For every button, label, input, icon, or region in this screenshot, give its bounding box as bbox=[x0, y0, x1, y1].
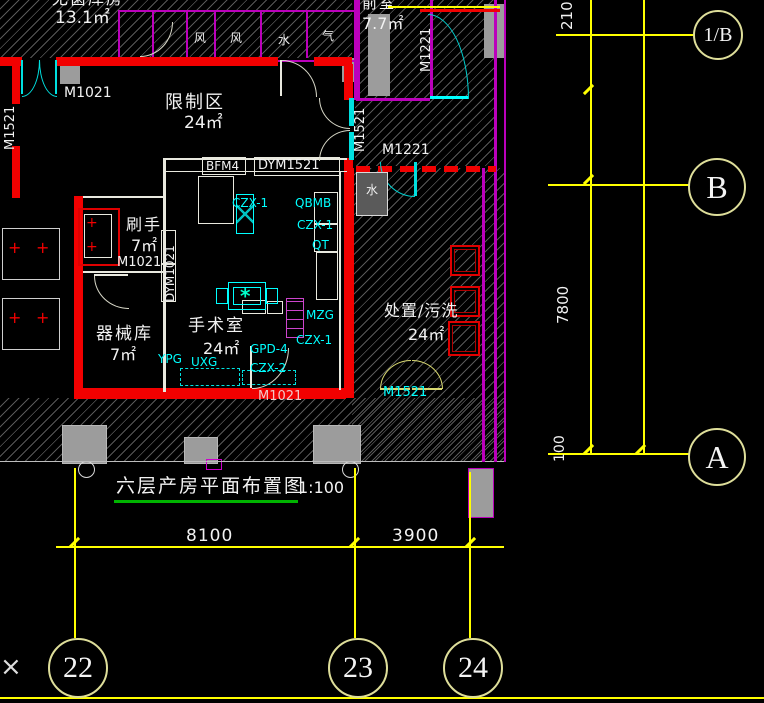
building-edge-line bbox=[0, 461, 504, 462]
door-label-dym1521: DYM1521 bbox=[258, 159, 320, 172]
room-anteroom-name: 前室 bbox=[362, 0, 396, 11]
grid-bubble-a: A bbox=[688, 428, 746, 486]
building-edge-v3 bbox=[504, 0, 506, 462]
equip-label-uxg: UXG bbox=[191, 356, 217, 368]
dim-line-bottom bbox=[56, 546, 504, 548]
door-label-m1021-scrub: M1021 bbox=[117, 256, 161, 269]
grid-line-b bbox=[548, 184, 690, 186]
shaft-label-2: 风 bbox=[230, 32, 242, 44]
equip-label-mzg: MZG bbox=[306, 309, 334, 321]
equip-label-qt: QT bbox=[312, 239, 329, 251]
column-bottom-1 bbox=[62, 425, 107, 464]
grid-ext-22 bbox=[74, 468, 76, 638]
column-bottom-3 bbox=[313, 425, 361, 464]
grid-bubble-b: B bbox=[688, 158, 746, 216]
drawing-title: 六层产房平面布置图 bbox=[116, 477, 305, 496]
room-sterile-store-area: 13.1㎡ bbox=[55, 10, 110, 27]
operating-table-lamp-symbol: * bbox=[240, 286, 250, 306]
drawing-scale: 1:100 bbox=[298, 480, 344, 496]
door-label-m1221-horizontal: M1221 bbox=[382, 143, 430, 157]
grid-bubble-24: 24 bbox=[443, 638, 503, 698]
water-shaft-label: 水 bbox=[366, 184, 378, 196]
or-right-inner-line bbox=[339, 172, 341, 390]
mzg-unit bbox=[286, 298, 304, 338]
dim-tick bbox=[583, 84, 594, 95]
room-scrub-name: 刷手 bbox=[126, 217, 162, 233]
wall-left-upper bbox=[12, 64, 20, 104]
operating-table-side-right bbox=[266, 288, 278, 304]
equip-label-czx1-c: CZX-1 bbox=[296, 334, 332, 346]
qt-unit bbox=[316, 252, 338, 300]
top-right-red-line bbox=[420, 9, 500, 12]
door-arc-topleft-1 bbox=[22, 60, 40, 97]
sink-tap-mark: + bbox=[86, 240, 98, 254]
shaft-divider-5 bbox=[306, 10, 308, 58]
wall-bottom bbox=[74, 388, 346, 399]
shaft-divider-2 bbox=[186, 10, 188, 58]
grid-cross-mark: × bbox=[0, 654, 22, 680]
trolley-1-mark: + bbox=[8, 240, 21, 256]
cad-floor-plan-canvas: * + + + + + + 水 风 风 水 气 无菌库房 13.1㎡ 限制区 2… bbox=[0, 0, 764, 703]
dim-text-100: 100 bbox=[553, 435, 567, 462]
room-disposal-area: 24㎡ bbox=[408, 327, 444, 343]
room-anteroom-area: 7.7㎡ bbox=[362, 16, 403, 32]
door-label-bfm4: BFM4 bbox=[206, 160, 239, 172]
door-label-dym1021: DYM1021 bbox=[164, 245, 176, 302]
wall-top-b bbox=[56, 57, 278, 66]
door-leaf bbox=[55, 60, 57, 94]
door-label-m1021-or: M1021 bbox=[258, 390, 302, 403]
wall-main-right bbox=[344, 168, 354, 398]
door-arc-m1521-right-1 bbox=[319, 98, 350, 129]
sink-tap-mark: + bbox=[86, 216, 98, 230]
grid-bubble-22: 22 bbox=[48, 638, 108, 698]
equip-label-czx2: CZX-2 bbox=[250, 362, 286, 374]
shaft-label-4: 气 bbox=[322, 30, 334, 42]
column-base-circle-22 bbox=[78, 461, 95, 478]
equip-label-gpd4: GPD-4 bbox=[250, 343, 288, 355]
equip-label-czx1-a: CZX-1 bbox=[232, 197, 268, 209]
room-instrument-area: 7㎡ bbox=[110, 347, 136, 363]
column-base-circle-23 bbox=[342, 461, 359, 478]
trolley-2-mark: + bbox=[8, 310, 21, 326]
wall-restricted-right-a bbox=[344, 64, 353, 100]
grid-line-1b bbox=[556, 34, 694, 36]
title-underline bbox=[114, 500, 298, 503]
scrub-instrument-partition bbox=[83, 271, 163, 273]
grid-bubble-23: 23 bbox=[328, 638, 388, 698]
trolley-1-mark: + bbox=[36, 240, 49, 256]
dim-text-3900: 3900 bbox=[392, 528, 439, 545]
equip-label-qbmb: QBMB bbox=[295, 197, 331, 209]
shaft-label-1: 风 bbox=[194, 32, 206, 44]
shaft-label-3: 水 bbox=[278, 34, 290, 46]
room-sterile-store-name: 无菌库房 bbox=[52, 0, 124, 7]
shaft-divider-4 bbox=[260, 10, 262, 58]
door-label-m1521-right: M1521 bbox=[354, 108, 367, 152]
room-operating-name: 手术室 bbox=[188, 318, 245, 335]
shaft-divider-3 bbox=[214, 10, 216, 58]
dim-line-vertical bbox=[590, 0, 592, 455]
grid-bubble-1b: 1/B bbox=[693, 10, 743, 60]
dim-text-210: 210 bbox=[560, 1, 575, 30]
building-edge-v2 bbox=[494, 0, 497, 462]
anteroom-left-wall bbox=[354, 0, 360, 100]
border-line-bottom bbox=[0, 697, 764, 699]
building-grid-vertical bbox=[643, 0, 645, 455]
or-cabinet-top bbox=[198, 176, 234, 224]
top-right-yellow-line bbox=[388, 6, 500, 8]
room-instrument-name: 器械库 bbox=[96, 326, 153, 343]
door-arc-instrument bbox=[94, 276, 129, 309]
door-label-m1021-top: M1021 bbox=[64, 86, 112, 100]
door-label-m1521-bottom: M1521 bbox=[383, 386, 427, 399]
grid-ext-24 bbox=[469, 472, 471, 638]
operating-table-side-left bbox=[216, 288, 228, 304]
room-disposal-name: 处置/污洗 bbox=[384, 303, 458, 319]
equip-label-ypg: YPG bbox=[158, 353, 182, 365]
room-restricted-name: 限制区 bbox=[165, 94, 225, 112]
wall-left-lower bbox=[12, 146, 20, 198]
or-counter-ypg bbox=[180, 368, 240, 386]
door-label-m1521-left: M1521 bbox=[4, 106, 17, 150]
scrub-top-wall bbox=[83, 196, 163, 198]
building-edge-v1 bbox=[482, 168, 485, 462]
disposal-fixture-3 bbox=[448, 321, 480, 356]
dim-text-8100: 8100 bbox=[186, 528, 233, 545]
disposal-fixture-1 bbox=[450, 245, 480, 276]
anteroom-bottom-wall bbox=[356, 98, 430, 101]
trolley-2-mark: + bbox=[36, 310, 49, 326]
grid-ext-23 bbox=[354, 468, 356, 638]
room-scrub-area: 7㎡ bbox=[131, 238, 157, 254]
door-label-m1221-vertical: M1221 bbox=[420, 28, 433, 72]
column-right-lower bbox=[468, 468, 494, 518]
room-restricted-area: 24㎡ bbox=[184, 115, 223, 132]
dim-text-7800: 7800 bbox=[556, 286, 571, 324]
door-arc-restricted-top bbox=[282, 60, 317, 97]
equip-label-czx1-b: CZX-1 bbox=[297, 219, 333, 231]
grid-line-a bbox=[548, 453, 690, 455]
